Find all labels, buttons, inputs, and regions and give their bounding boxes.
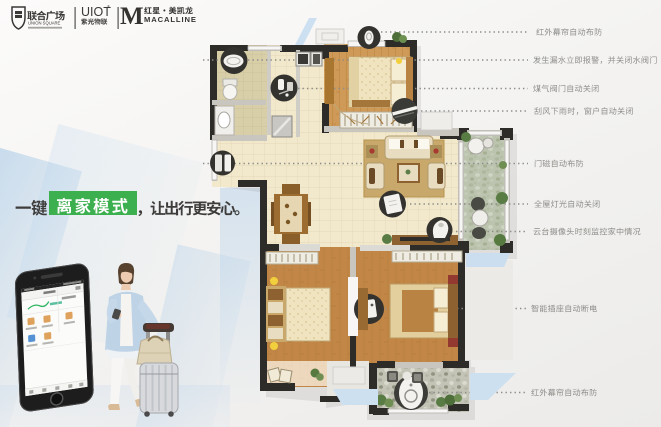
svg-text:M: M xyxy=(120,3,144,30)
svg-text:UNION SQUARE: UNION SQUARE xyxy=(28,21,61,26)
svg-text:MACALLINE: MACALLINE xyxy=(144,15,197,24)
svg-text:®: ® xyxy=(107,4,110,9)
